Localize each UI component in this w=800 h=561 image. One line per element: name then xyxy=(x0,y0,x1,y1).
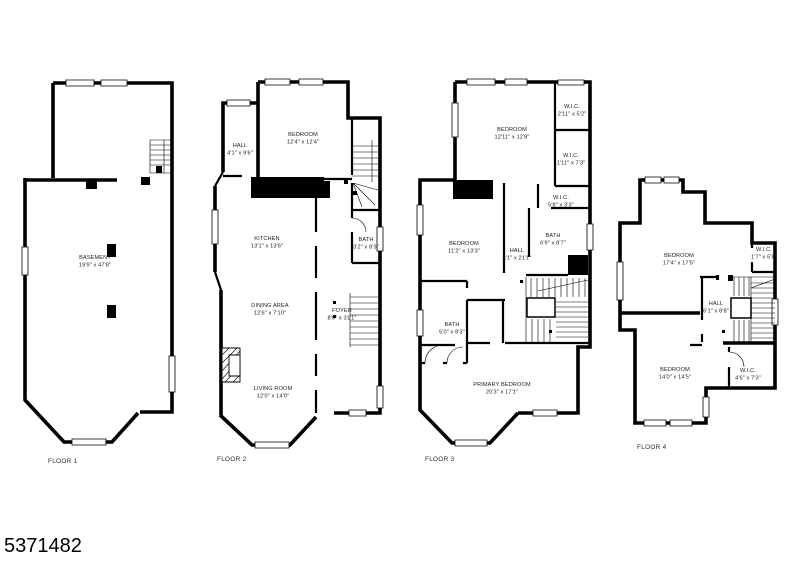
floor2-door-arc xyxy=(352,218,366,232)
floor1-room-label-basement: BASEMENT 19'9" x 47'8" xyxy=(79,255,111,269)
floor3-interior-walls xyxy=(420,82,590,363)
floor-4-plan: BEDROOM 17'4" x 17'5" W.I.C. 1'7" x 6'8"… xyxy=(617,177,778,451)
f2-foyer-name: FOYER xyxy=(332,308,352,314)
basement-dims: 19'9" x 47'8" xyxy=(79,263,111,269)
f2-hall-dims: 4'1" x 9'6" xyxy=(227,151,253,157)
floorplan-image: BASEMENT 19'9" x 47'8" FLOOR 1 BEDROOM 1… xyxy=(0,0,800,561)
f3-bath1-dims: 6'9" x 8'7" xyxy=(540,241,566,247)
f2-dining-name: DINING AREA xyxy=(251,303,289,309)
f4-hall-dims: 6'1" x 8'8" xyxy=(703,309,729,315)
f4-wic1-dims: 1'7" x 6'8" xyxy=(751,255,777,261)
f2-living-dims: 12'0" x 14'0" xyxy=(257,394,289,400)
floor-1-plan: BASEMENT 19'9" x 47'8" FLOOR 1 xyxy=(22,80,175,465)
f4-bedroom1-name: BEDROOM xyxy=(664,253,694,259)
listing-id: 5371482 xyxy=(4,535,82,557)
f3-bedroom1-name: BEDROOM xyxy=(497,127,527,133)
f4-hall-name: HALL xyxy=(709,301,723,307)
f2-bath-dims: 3'2" x 8'3" xyxy=(353,245,379,251)
f3-bedroom1-dims: 12'11" x 12'8" xyxy=(494,135,529,141)
floor-3-plan: BEDROOM 12'11" x 12'8" W.I.C. 2'11" x 5'… xyxy=(417,79,593,463)
f3-bath2-name: BATH xyxy=(445,322,460,328)
floor-4-label: FLOOR 4 xyxy=(637,444,667,451)
f3-primary-name: PRIMARY BEDROOM xyxy=(473,382,531,388)
f2-bath-name: BATH xyxy=(359,237,374,243)
f3-bedroom2-name: BEDROOM xyxy=(449,241,479,247)
f4-wic2-dims: 4'6" x 7'3" xyxy=(735,376,761,382)
f2-kitchen-dims: 13'1" x 13'6" xyxy=(251,244,283,250)
f4-wic2-name: W.I.C. xyxy=(740,368,756,374)
f2-living-name: LIVING ROOM xyxy=(254,386,293,392)
floor3-door-arcs xyxy=(425,345,463,363)
basement-name: BASEMENT xyxy=(79,255,111,261)
f4-bedroom2-dims: 14'0" x 14'5" xyxy=(659,375,691,381)
floor2-fireplace xyxy=(222,348,240,382)
f3-wic1-name: W.I.C. xyxy=(564,104,580,110)
floor2-room-labels: BEDROOM 12'4" x 12'4" HALL 4'1" x 9'6" K… xyxy=(227,132,379,400)
floorplan-canvas: BASEMENT 19'9" x 47'8" FLOOR 1 BEDROOM 1… xyxy=(0,0,800,561)
f3-bath2-dims: 5'0" x 8'3" xyxy=(439,330,465,336)
floor-3-label: FLOOR 3 xyxy=(425,456,455,463)
floor-2-label: FLOOR 2 xyxy=(217,456,247,463)
f3-wic3-name: W.I.C. xyxy=(553,195,569,201)
f3-wic2-name: W.I.C. xyxy=(563,153,579,159)
f3-primary-dims: 20'3" x 17'1" xyxy=(486,390,518,396)
f2-dining-dims: 12'6" x 7'10" xyxy=(254,311,286,317)
floor3-room-labels: BEDROOM 12'11" x 12'8" W.I.C. 2'11" x 5'… xyxy=(439,104,586,396)
f2-kitchen-name: KITCHEN xyxy=(254,236,279,242)
f2-foyer-dims: 8'0" x 31'1" xyxy=(327,316,356,322)
f4-bedroom2-name: BEDROOM xyxy=(660,367,690,373)
floor-2-plan: BEDROOM 12'4" x 12'4" HALL 4'1" x 9'6" K… xyxy=(212,79,383,463)
floor4-door-arc xyxy=(729,352,744,367)
floor3-stairwell-opening xyxy=(527,298,555,317)
floor1-wall-fills xyxy=(86,166,162,318)
f2-hall-name: HALL xyxy=(233,143,247,149)
f4-wic1-name: W.I.C. xyxy=(756,247,772,253)
f4-bedroom1-dims: 17'4" x 17'5" xyxy=(663,261,695,267)
floor-1-label: FLOOR 1 xyxy=(48,458,78,465)
f2-bedroom-name: BEDROOM xyxy=(288,132,318,138)
f3-bath1-name: BATH xyxy=(546,233,561,239)
f2-bedroom-dims: 12'4" x 12'4" xyxy=(287,140,319,146)
floor4-stairwell-opening xyxy=(731,298,751,318)
fireplace-firebox xyxy=(229,355,240,376)
f3-wic1-dims: 2'11" x 5'2" xyxy=(558,112,587,118)
f3-wic2-dims: 1'11" x 7'3" xyxy=(557,161,586,167)
f3-hall-name: HALL xyxy=(510,248,524,254)
f3-wic3-dims: 5'8" x 3'3" xyxy=(548,203,574,209)
f3-hall-dims: 6'1" x 21'1" xyxy=(502,256,531,262)
f3-bedroom2-dims: 11'2" x 13'3" xyxy=(448,249,480,255)
